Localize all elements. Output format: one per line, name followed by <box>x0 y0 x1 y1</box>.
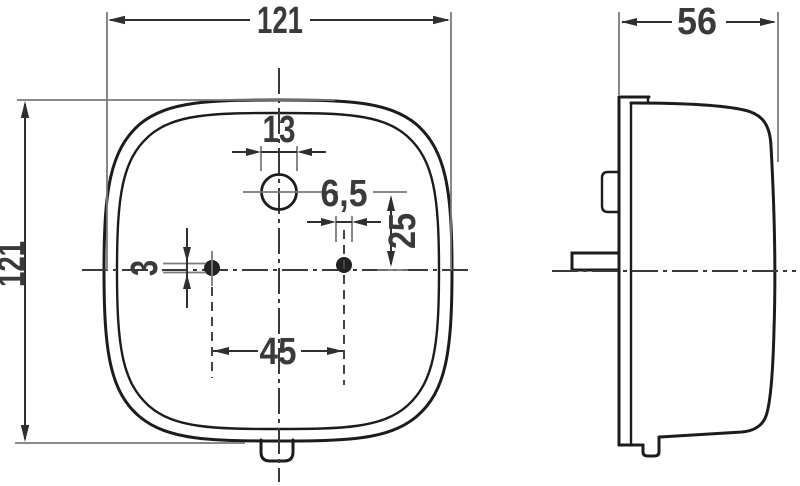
arrowhead-down <box>21 425 29 442</box>
dim-side-depth: 56 <box>619 1 778 162</box>
dim-hole-3: 3 <box>124 228 206 308</box>
left-small-hole <box>204 251 220 286</box>
dim-hole-3-label: 3 <box>124 260 166 276</box>
dim-front-width-label: 121 <box>257 0 303 42</box>
drawing-canvas: 121 121 13 <box>0 0 800 486</box>
arrowhead-down <box>387 251 395 267</box>
dim-spacing-45-label: 45 <box>260 331 297 373</box>
arrowhead-left <box>321 218 336 226</box>
arrowhead-right <box>327 347 343 355</box>
dim-hole-65-label: 6,5 <box>321 173 368 215</box>
dim-front-height-label: 121 <box>0 241 33 287</box>
side-mounting-stud <box>572 253 619 270</box>
dim-hole-13-label: 13 <box>263 109 296 151</box>
arrowhead-left <box>621 18 637 26</box>
arrowhead-left <box>246 148 261 156</box>
side-bottom-tab <box>643 437 659 456</box>
arrowhead-down <box>183 247 191 262</box>
side-upper-clip <box>602 172 619 212</box>
arrowhead-up <box>387 195 395 211</box>
front-bottom-tab <box>261 440 293 461</box>
arrowhead-right <box>760 18 776 26</box>
dim-offset-25-label: 25 <box>382 213 424 249</box>
lamp-side-body <box>572 97 775 456</box>
front-view: 121 121 13 <box>0 0 468 482</box>
arrowhead-up <box>183 274 191 289</box>
technical-drawing: 121 121 13 <box>0 0 800 486</box>
arrowhead-right <box>352 218 367 226</box>
dim-side-depth-label: 56 <box>677 1 717 43</box>
side-view: 56 <box>552 1 796 456</box>
arrowhead-left <box>108 16 125 24</box>
arrowhead-right <box>297 148 312 156</box>
arrowhead-right <box>433 16 450 24</box>
dim-offset-25: 25 <box>373 192 424 270</box>
arrowhead-left <box>213 347 229 355</box>
arrowhead-up <box>21 101 29 118</box>
